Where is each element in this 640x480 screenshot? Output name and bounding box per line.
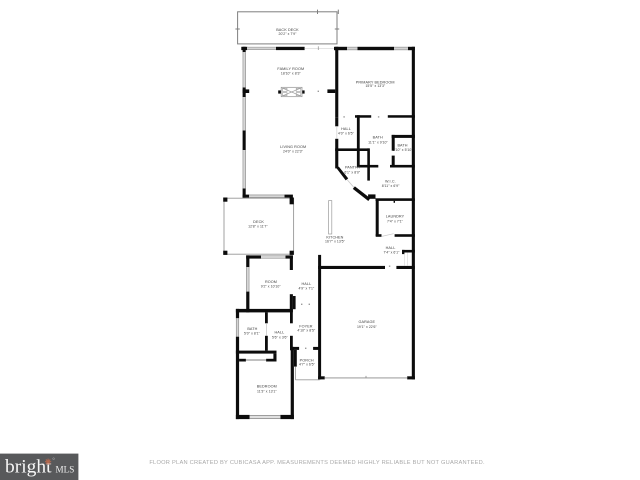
svg-text:BEDROOM: BEDROOM <box>257 385 277 389</box>
svg-text:24'0" x 22'3": 24'0" x 22'3" <box>283 149 304 153</box>
svg-text:ROOM: ROOM <box>265 280 277 284</box>
svg-text:15'5" x 13'3": 15'5" x 13'3" <box>365 84 386 88</box>
svg-text:7'4" x 6'1": 7'4" x 6'1" <box>384 251 401 255</box>
svg-text:LIVING ROOM: LIVING ROOM <box>280 145 306 149</box>
svg-text:BATH: BATH <box>373 136 383 140</box>
svg-text:16'7" x 13'5": 16'7" x 13'5" <box>325 240 346 244</box>
svg-text:GARAGE: GARAGE <box>358 320 375 324</box>
svg-text:4'10" x 8'5": 4'10" x 8'5" <box>297 329 316 333</box>
svg-text:HALL: HALL <box>302 282 312 286</box>
svg-text:FLOOR PLAN CREATED BY CUBICASA: FLOOR PLAN CREATED BY CUBICASA APP. MEAS… <box>149 460 485 466</box>
svg-text:bright: bright <box>5 457 52 478</box>
svg-text:HALL: HALL <box>341 127 351 131</box>
svg-text:4'0" x 6'5": 4'0" x 6'5" <box>338 132 355 136</box>
svg-text:DECK: DECK <box>253 220 264 224</box>
svg-text:11'1" x 9'10": 11'1" x 9'10" <box>368 140 388 144</box>
svg-text:12'8" x 11'7": 12'8" x 11'7" <box>248 225 268 229</box>
svg-text:5'10" x 5'10": 5'10" x 5'10" <box>393 148 414 152</box>
svg-text:5'6" x 3'6": 5'6" x 3'6" <box>272 335 289 339</box>
svg-text:HALL: HALL <box>275 330 285 334</box>
svg-text:18'10" x 8'3": 18'10" x 8'3" <box>281 71 302 75</box>
svg-text:W.I.C.: W.I.C. <box>385 179 396 183</box>
svg-text:4'7" x 6'5": 4'7" x 6'5" <box>299 363 316 367</box>
svg-text:11'3" x 13'1": 11'3" x 13'1" <box>257 389 277 393</box>
svg-text:MLS: MLS <box>56 465 75 475</box>
svg-text:7'4" x 7'1": 7'4" x 7'1" <box>387 219 404 223</box>
svg-text:PANTRY: PANTRY <box>345 166 361 170</box>
svg-text:LAUNDRY: LAUNDRY <box>386 215 405 219</box>
svg-text:19'1" x 22'6": 19'1" x 22'6" <box>357 325 378 329</box>
svg-text:9'2" x 10'10": 9'2" x 10'10" <box>261 285 282 289</box>
svg-text:BATH: BATH <box>247 327 257 331</box>
svg-text:20'2" x 7'9": 20'2" x 7'9" <box>279 32 298 36</box>
svg-text:6'1" x 8'0": 6'1" x 8'0" <box>344 171 361 175</box>
svg-text:BATH: BATH <box>397 144 407 148</box>
svg-text:8'11" x 6'9": 8'11" x 6'9" <box>382 184 400 188</box>
svg-text:5'0" x 8'1": 5'0" x 8'1" <box>244 332 261 336</box>
svg-text:HALL: HALL <box>386 246 396 250</box>
svg-text:4'9" x 7'1": 4'9" x 7'1" <box>298 287 315 291</box>
